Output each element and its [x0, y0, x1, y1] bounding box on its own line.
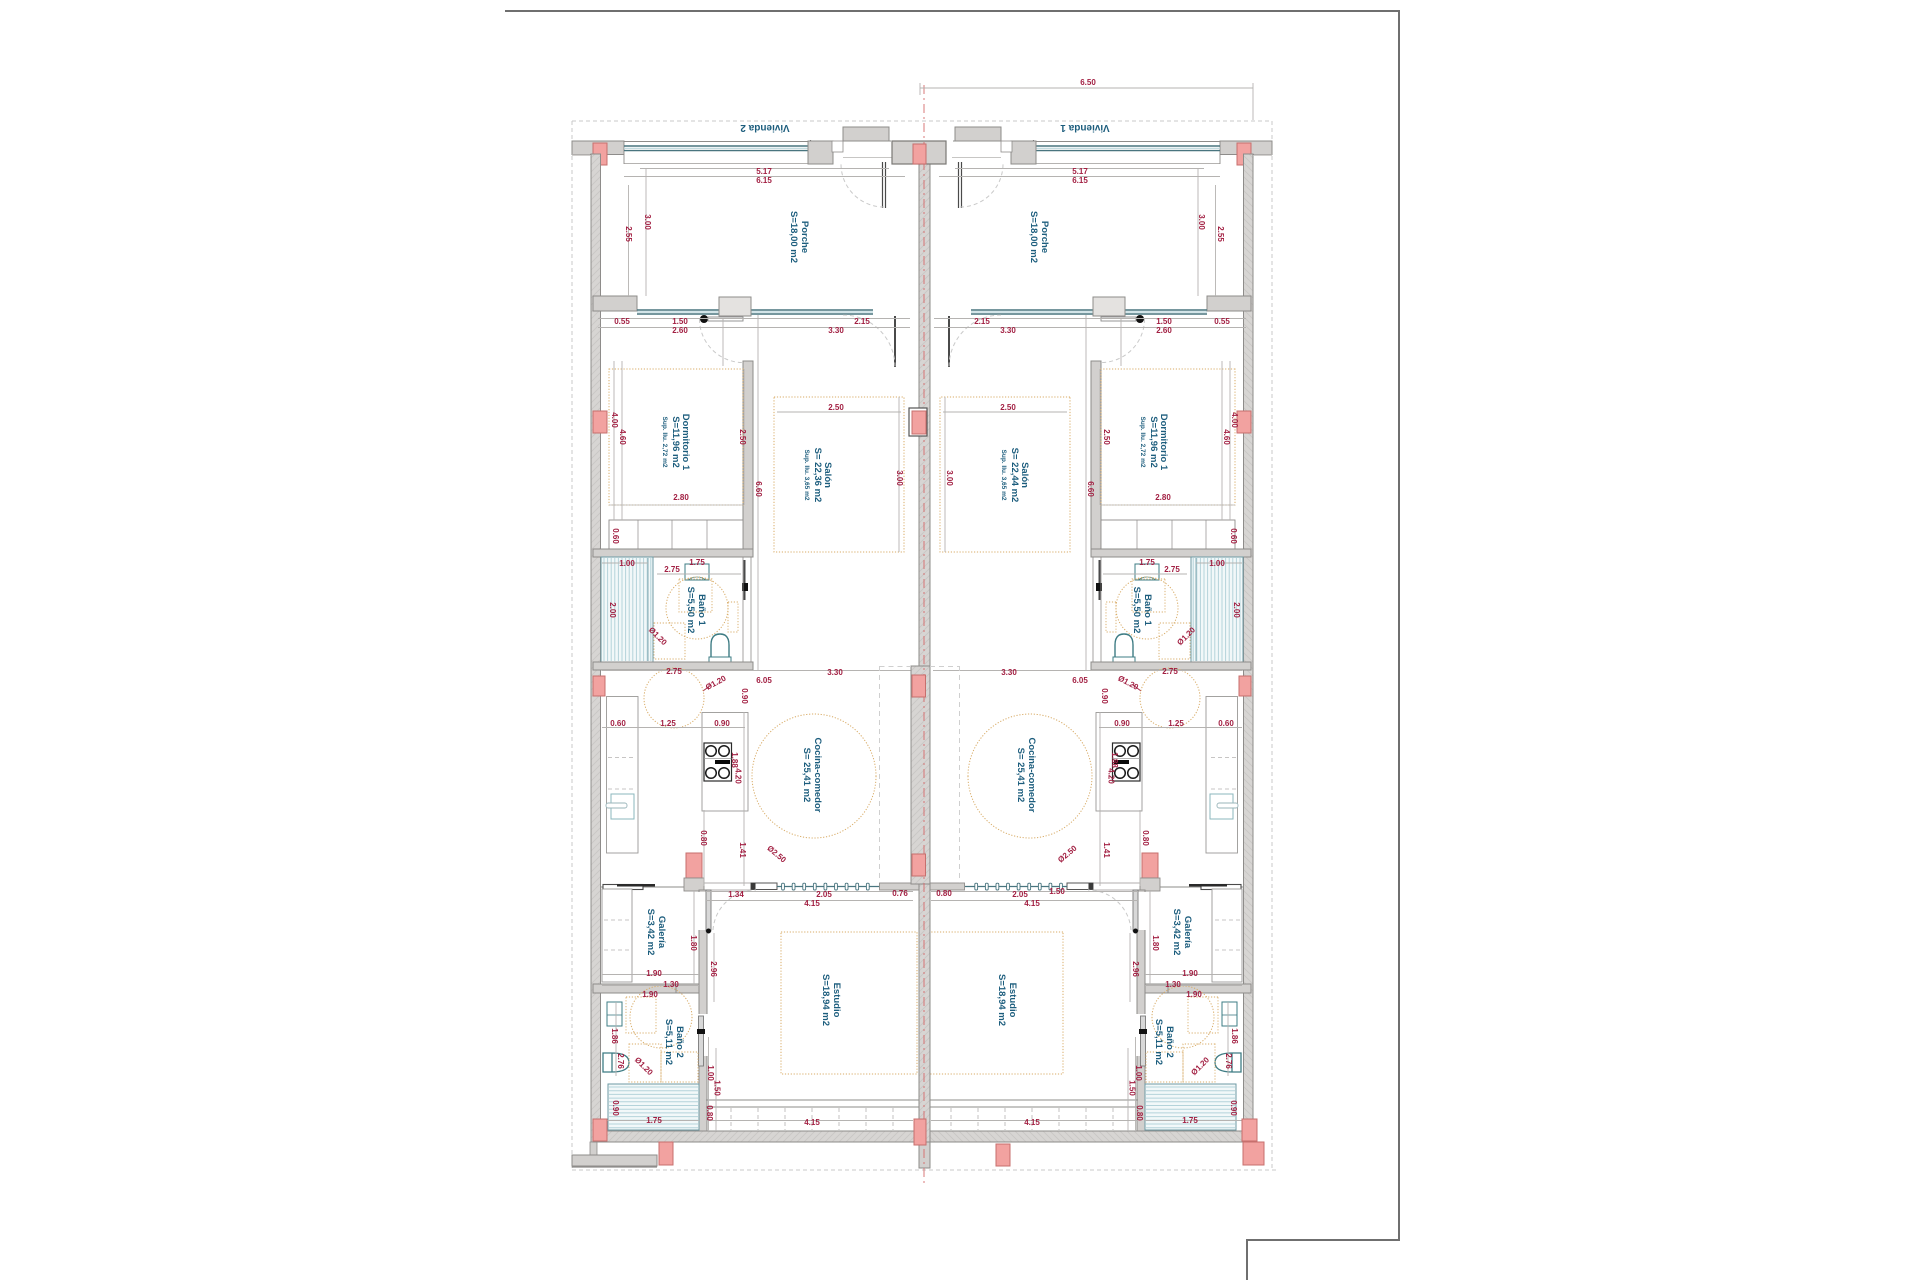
svg-text:3.30: 3.30 — [1001, 668, 1017, 677]
svg-text:1.50: 1.50 — [672, 317, 688, 326]
svg-text:2.76: 2.76 — [1224, 1053, 1233, 1069]
svg-text:1.75: 1.75 — [689, 558, 705, 567]
svg-text:4.15: 4.15 — [1024, 899, 1040, 908]
svg-text:1.86: 1.86 — [1230, 1028, 1239, 1044]
svg-text:2.60: 2.60 — [672, 326, 688, 335]
svg-text:2.76: 2.76 — [616, 1053, 625, 1069]
svg-text:6.05: 6.05 — [1072, 676, 1088, 685]
svg-text:2.96: 2.96 — [709, 961, 718, 977]
svg-text:5.17: 5.17 — [756, 167, 772, 176]
svg-text:1.00: 1.00 — [1209, 559, 1225, 568]
svg-text:6.05: 6.05 — [756, 676, 772, 685]
svg-text:2.50: 2.50 — [828, 403, 844, 412]
svg-text:1.90: 1.90 — [642, 990, 658, 999]
svg-text:0.55: 0.55 — [1214, 317, 1230, 326]
svg-text:5.17: 5.17 — [1072, 167, 1088, 176]
svg-text:2.80: 2.80 — [673, 493, 689, 502]
svg-text:6.15: 6.15 — [1072, 176, 1088, 185]
svg-text:3.00: 3.00 — [1197, 214, 1206, 230]
svg-text:0.80: 0.80 — [1135, 1105, 1144, 1121]
svg-text:1.80: 1.80 — [689, 935, 698, 951]
svg-text:0.90: 0.90 — [1229, 1100, 1238, 1116]
svg-text:1.50: 1.50 — [713, 1080, 722, 1096]
svg-text:0.60: 0.60 — [1229, 528, 1238, 544]
svg-text:1.00: 1.00 — [706, 1065, 715, 1081]
svg-text:2.50: 2.50 — [1102, 429, 1111, 445]
svg-text:4.60: 4.60 — [1222, 429, 1231, 445]
svg-text:0.55: 0.55 — [614, 317, 630, 326]
svg-text:2.50: 2.50 — [1000, 403, 1016, 412]
svg-text:Dormitorio 1S=11,96 m2Sup. Ilu: Dormitorio 1S=11,96 m2Sup. Ilu. 2,72 m2 — [661, 414, 691, 471]
svg-text:6.50: 6.50 — [1080, 78, 1096, 87]
svg-text:0.90: 0.90 — [1114, 719, 1130, 728]
svg-text:1.80: 1.80 — [1151, 935, 1160, 951]
svg-text:3.30: 3.30 — [828, 326, 844, 335]
svg-text:Cocina-comedorS= 25,41 m2: Cocina-comedorS= 25,41 m2 — [801, 738, 823, 813]
svg-text:2.00: 2.00 — [1232, 602, 1241, 618]
svg-text:4.15: 4.15 — [1024, 1118, 1040, 1127]
svg-text:0.60: 0.60 — [610, 719, 626, 728]
svg-text:1.00: 1.00 — [1134, 1065, 1143, 1081]
svg-text:0.90: 0.90 — [1100, 688, 1109, 704]
svg-text:2.55: 2.55 — [624, 226, 633, 242]
svg-text:1.86: 1.86 — [610, 1028, 619, 1044]
svg-text:2.96: 2.96 — [1131, 961, 1140, 977]
svg-text:1.90: 1.90 — [646, 969, 662, 978]
svg-text:1.88: 1.88 — [1110, 752, 1119, 768]
svg-text:1.90: 1.90 — [1182, 969, 1198, 978]
svg-text:1.50: 1.50 — [1127, 1080, 1136, 1096]
svg-text:0.80: 0.80 — [936, 889, 952, 898]
svg-text:4.15: 4.15 — [804, 899, 820, 908]
svg-text:3.30: 3.30 — [1000, 326, 1016, 335]
svg-text:2.05: 2.05 — [816, 890, 832, 899]
svg-text:2.05: 2.05 — [1012, 890, 1028, 899]
svg-text:1.50: 1.50 — [1049, 887, 1065, 896]
svg-text:Dormitorio 1S=11,96 m2Sup. Ilu: Dormitorio 1S=11,96 m2Sup. Ilu. 2,72 m2 — [1139, 414, 1169, 471]
svg-text:6.60: 6.60 — [754, 481, 763, 497]
svg-text:3.00: 3.00 — [643, 214, 652, 230]
svg-text:1.30: 1.30 — [663, 980, 679, 989]
svg-text:2.50: 2.50 — [738, 429, 747, 445]
svg-text:6.15: 6.15 — [756, 176, 772, 185]
svg-text:1.75: 1.75 — [646, 1116, 662, 1125]
svg-text:0.90: 0.90 — [740, 688, 749, 704]
svg-text:2.80: 2.80 — [1155, 493, 1171, 502]
svg-text:0.80: 0.80 — [705, 1105, 714, 1121]
svg-text:1.34: 1.34 — [728, 890, 744, 899]
svg-text:2.55: 2.55 — [1216, 226, 1225, 242]
svg-text:0.60: 0.60 — [611, 528, 620, 544]
svg-text:2.75: 2.75 — [1162, 667, 1178, 676]
svg-text:Vivienda 2: Vivienda 2 — [740, 122, 790, 133]
svg-text:0.80: 0.80 — [1141, 830, 1150, 846]
svg-text:4.00: 4.00 — [610, 412, 619, 428]
svg-text:1.30: 1.30 — [1165, 980, 1181, 989]
svg-text:0.76: 0.76 — [892, 889, 908, 898]
svg-text:6.60: 6.60 — [1086, 481, 1095, 497]
svg-text:1.75: 1.75 — [1139, 558, 1155, 567]
svg-text:2.15: 2.15 — [854, 317, 870, 326]
svg-text:1.75: 1.75 — [1182, 1116, 1198, 1125]
svg-text:1.00: 1.00 — [619, 559, 635, 568]
svg-text:0.90: 0.90 — [611, 1100, 620, 1116]
svg-text:4.60: 4.60 — [618, 429, 627, 445]
svg-text:2.15: 2.15 — [974, 317, 990, 326]
svg-text:Cocina-comedorS= 25,41 m2: Cocina-comedorS= 25,41 m2 — [1015, 738, 1037, 813]
svg-text:1.88: 1.88 — [730, 752, 739, 768]
svg-text:2.60: 2.60 — [1156, 326, 1172, 335]
svg-text:4.15: 4.15 — [804, 1118, 820, 1127]
svg-text:2.75: 2.75 — [664, 565, 680, 574]
svg-text:0.90: 0.90 — [714, 719, 730, 728]
svg-text:1.41: 1.41 — [1102, 842, 1111, 858]
svg-text:1.25: 1.25 — [1168, 719, 1184, 728]
svg-text:2.75: 2.75 — [1164, 565, 1180, 574]
svg-text:3.00: 3.00 — [945, 470, 954, 486]
svg-text:Vivienda 1: Vivienda 1 — [1060, 122, 1110, 133]
svg-text:4.20: 4.20 — [1107, 768, 1116, 784]
svg-text:3.00: 3.00 — [895, 470, 904, 486]
svg-text:4.00: 4.00 — [1230, 412, 1239, 428]
svg-text:0.60: 0.60 — [1218, 719, 1234, 728]
svg-text:2.00: 2.00 — [608, 602, 617, 618]
svg-text:1.41: 1.41 — [738, 842, 747, 858]
svg-text:2.75: 2.75 — [666, 667, 682, 676]
svg-text:1.90: 1.90 — [1186, 990, 1202, 999]
svg-text:0.80: 0.80 — [699, 830, 708, 846]
svg-text:1.50: 1.50 — [1156, 317, 1172, 326]
svg-text:3.30: 3.30 — [827, 668, 843, 677]
svg-text:4.20: 4.20 — [734, 768, 743, 784]
svg-text:1.25: 1.25 — [660, 719, 676, 728]
